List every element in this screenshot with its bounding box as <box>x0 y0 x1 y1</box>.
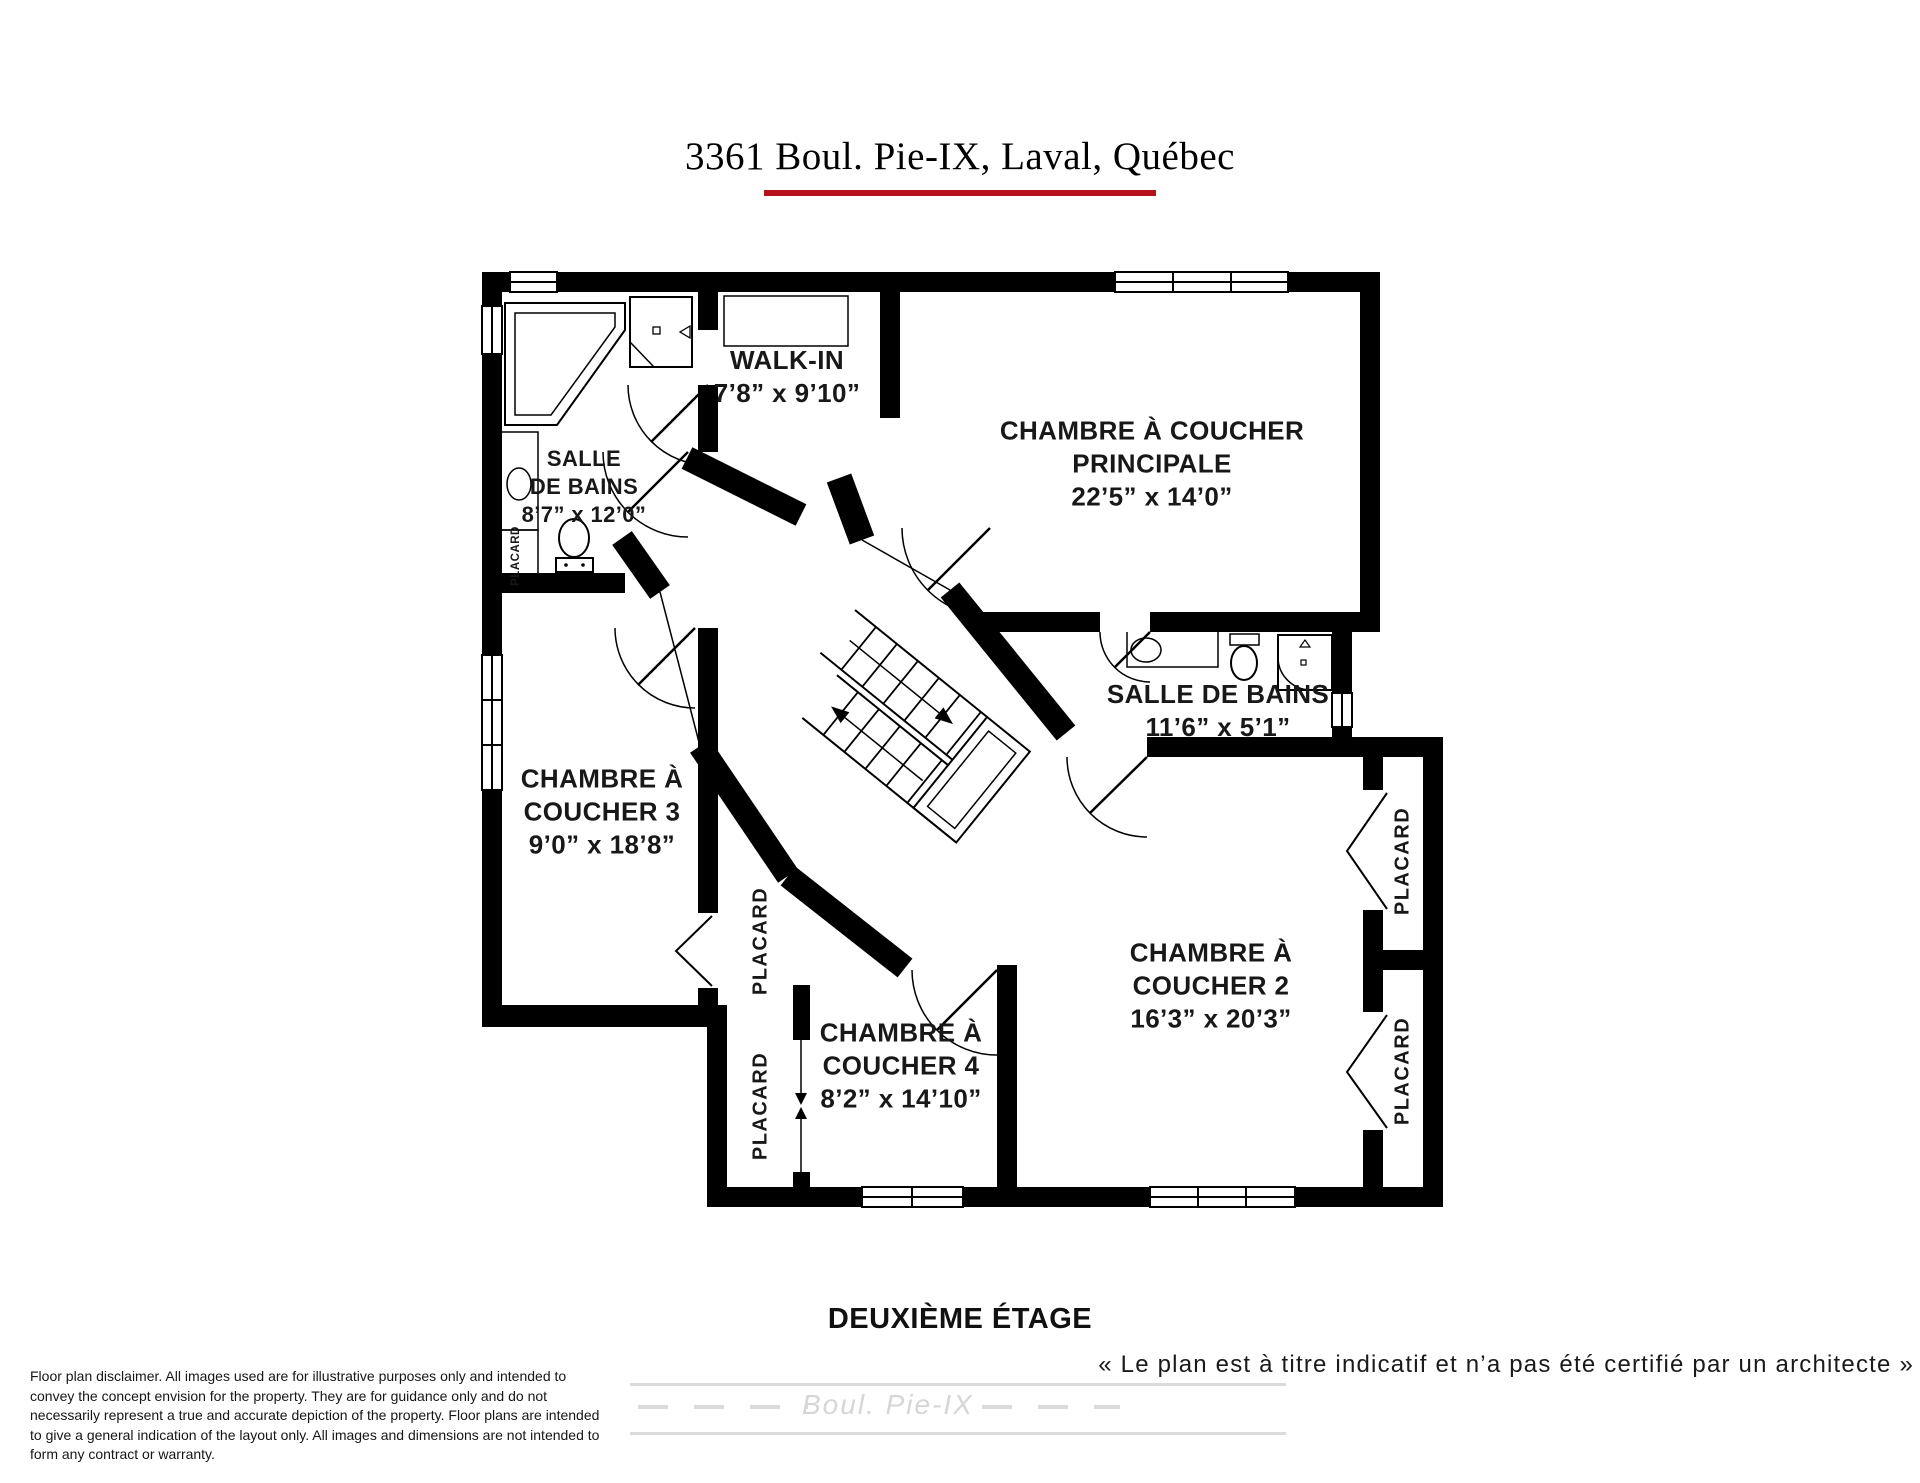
room-dims: 22’5” x 14’0” <box>1000 481 1304 514</box>
floor-plan-drawing <box>0 0 1920 1483</box>
room-dims: 16’3” x 20’3” <box>1130 1003 1292 1036</box>
floor-title: DEUXIÈME ÉTAGE <box>0 1303 1920 1336</box>
room-label-walkin: WALK-IN 7’8” x 9’10” <box>714 344 860 410</box>
road-dash-line-left <box>638 1405 808 1409</box>
street-name-watermark: Boul. Pie-IX <box>802 1389 974 1421</box>
closet-label-hall: PLACARD <box>750 887 773 995</box>
room-label-bedroom3: CHAMBRE À COUCHER 3 9’0” x 18’8” <box>521 763 683 862</box>
floor-plan-page: 3361 Boul. Pie-IX, Laval, Québec <box>0 0 1920 1483</box>
room-dims: 8’7” x 12’0” <box>522 501 647 529</box>
shower-stall-icon <box>630 297 692 367</box>
room-label-main-bath: SALLE DE BAINS 11’6” x 5’1” <box>1107 678 1329 744</box>
room-label-master-bedroom: CHAMBRE À COUCHER PRINCIPALE 22’5” x 14’… <box>1000 415 1304 514</box>
room-label-bedroom2: CHAMBRE À COUCHER 2 16’3” x 20’3” <box>1130 937 1292 1036</box>
architect-disclaimer-quote: « Le plan est à titre indicatif et n’a p… <box>1098 1351 1914 1379</box>
closet-label-ensuite: PLACARD <box>510 526 522 586</box>
room-dims: 11’6” x 5’1” <box>1107 711 1329 744</box>
walkin-shelf <box>724 296 848 346</box>
closet-label-bedroom2-upper: PLACARD <box>1392 807 1415 915</box>
disclaimer-text: Floor plan disclaimer. All images used a… <box>30 1367 610 1465</box>
opening-arrows <box>795 1040 807 1172</box>
corner-bathtub-icon <box>505 303 625 425</box>
closet-label-bedroom2-lower: PLACARD <box>1392 1017 1415 1125</box>
counter-sink-icon-bath2 <box>1127 632 1218 667</box>
room-dims: 8’2” x 14’10” <box>820 1083 982 1116</box>
room-label-ensuite-bath: SALLE DE BAINS 8’7” x 12’0” <box>522 445 647 529</box>
room-dims: 9’0” x 18’8” <box>521 829 683 862</box>
closet-label-bedroom4: PLACARD <box>750 1052 773 1160</box>
street-graphic: Boul. Pie-IX <box>630 1383 1286 1435</box>
road-dash-line-right <box>982 1405 1120 1409</box>
toilet-icon-bath2 <box>1230 634 1259 680</box>
room-label-bedroom4: CHAMBRE À COUCHER 4 8’2” x 14’10” <box>820 1017 982 1116</box>
room-dims: 7’8” x 9’10” <box>714 377 860 410</box>
